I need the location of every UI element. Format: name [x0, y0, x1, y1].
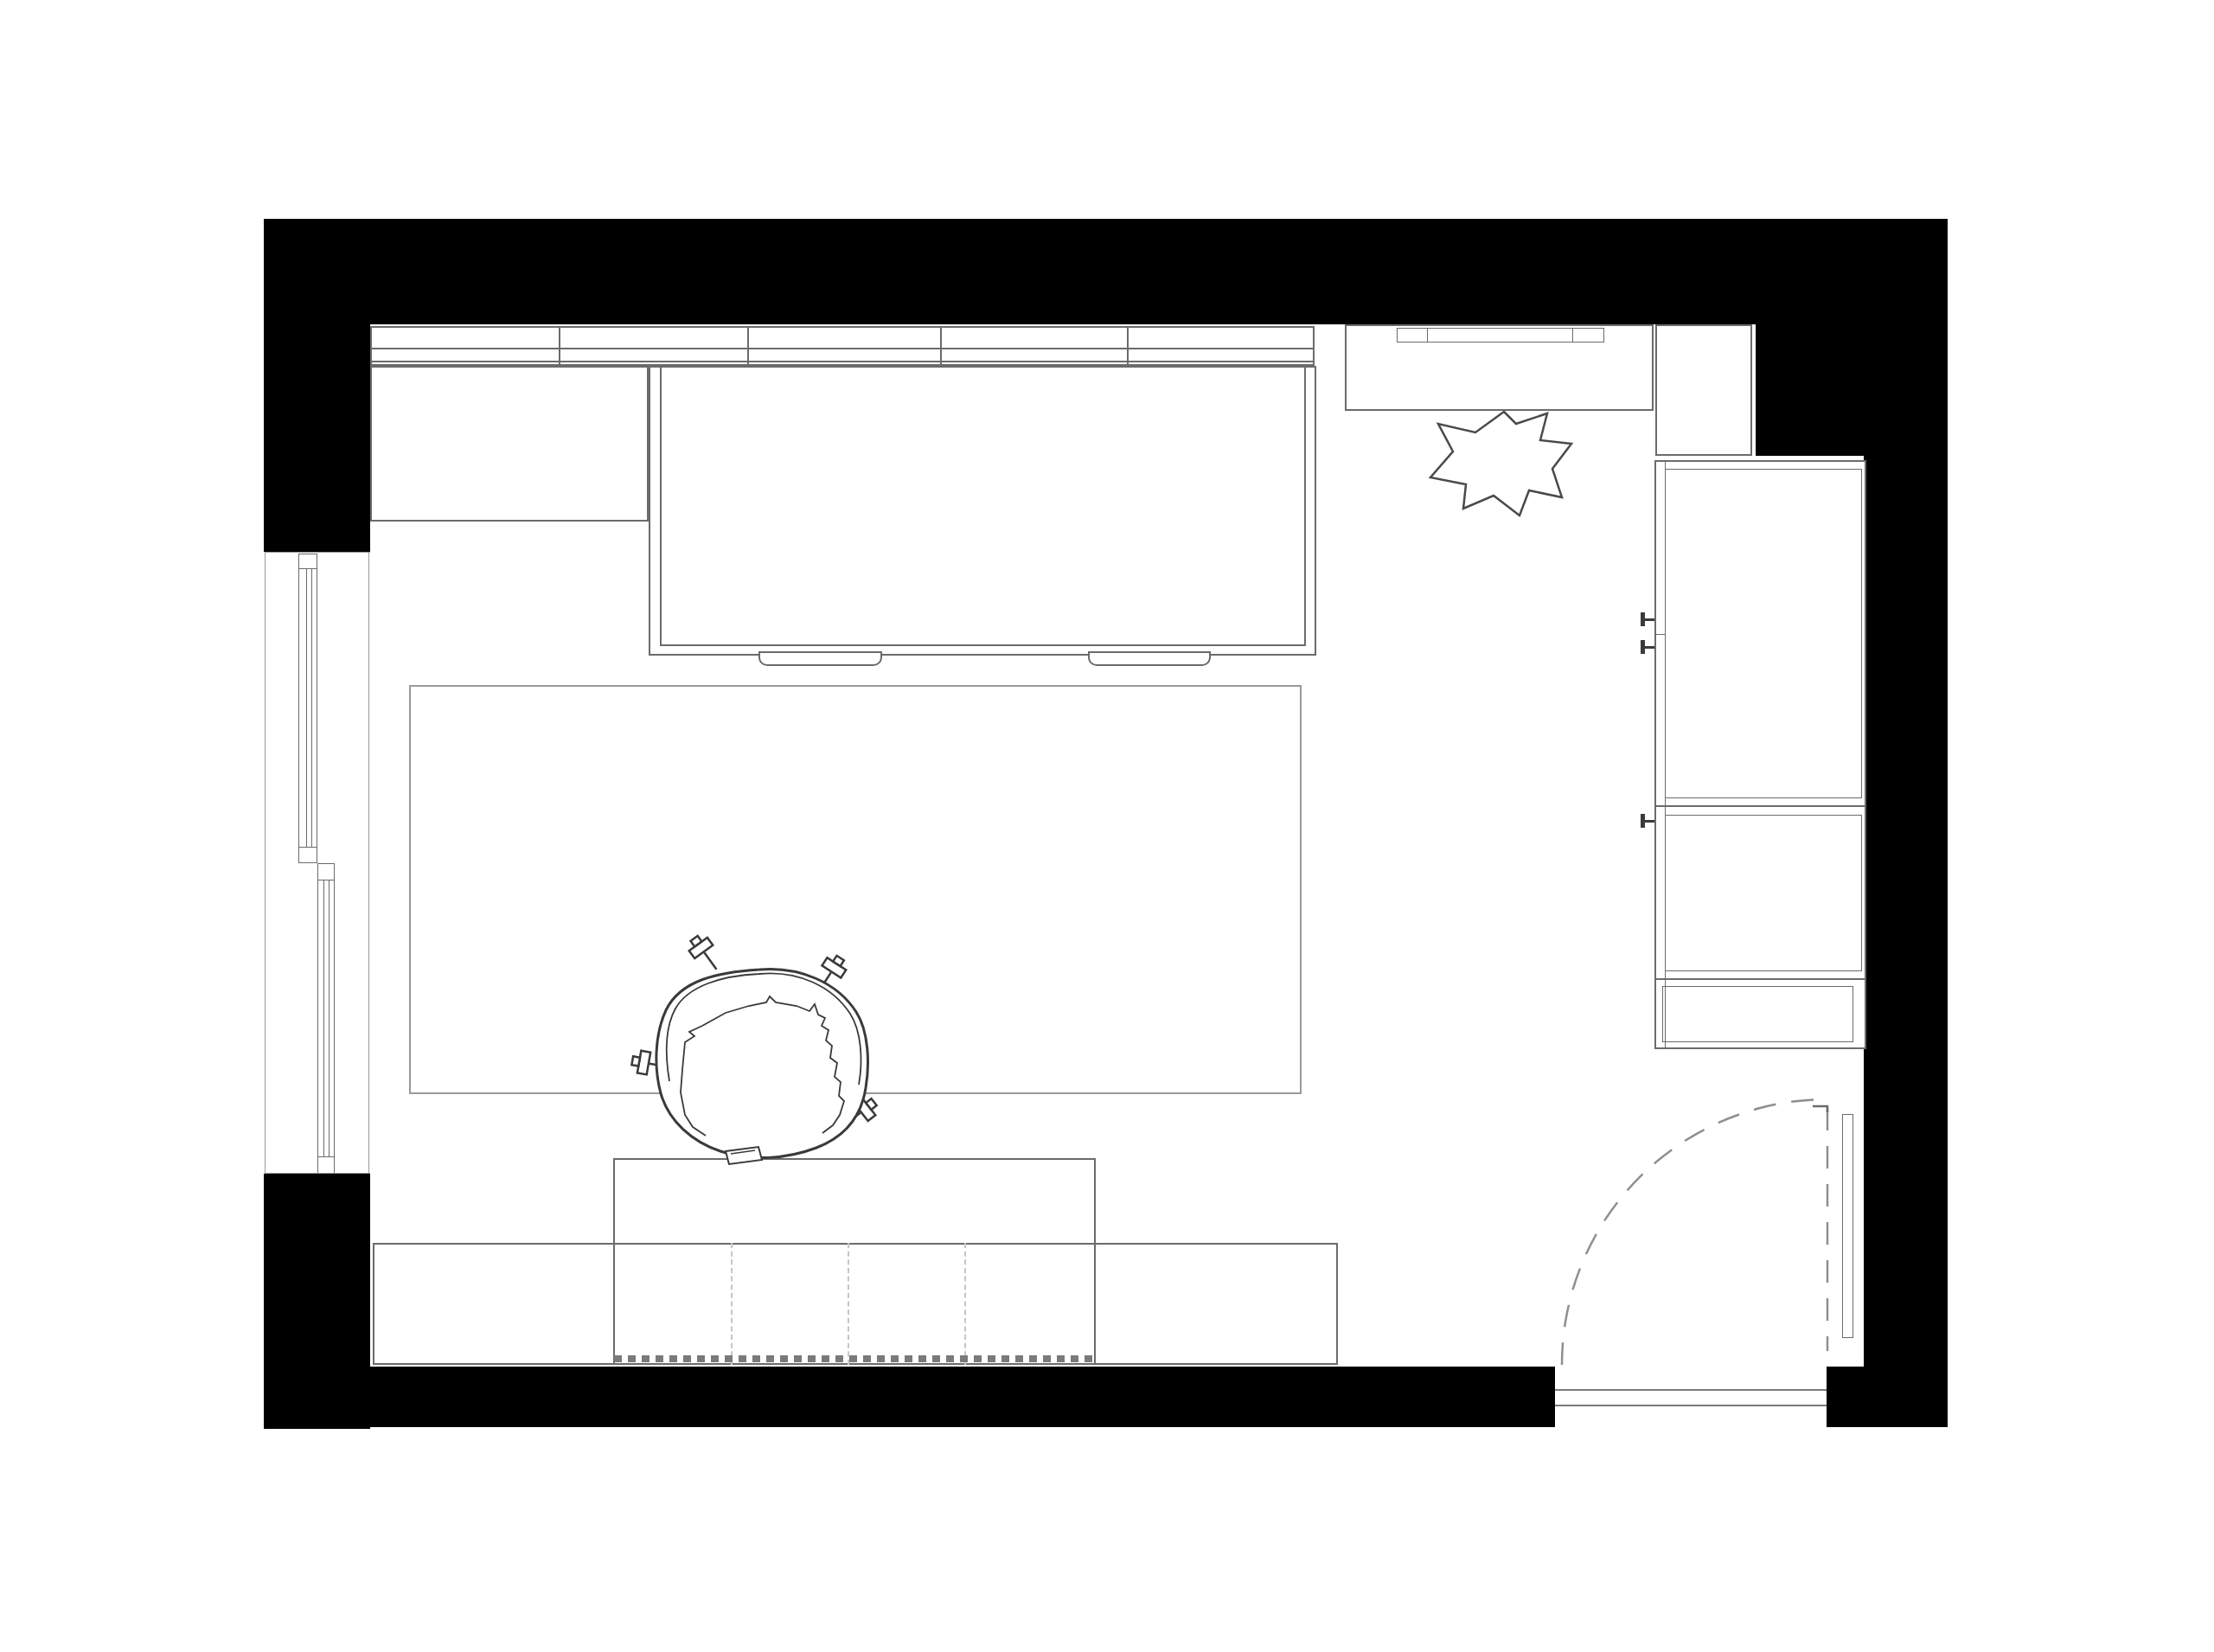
- cabinet-top-right: [1655, 324, 1752, 456]
- window-opening-outer-edge: [265, 552, 266, 1174]
- shelf-strip-bottom-line: [370, 361, 1315, 362]
- wardrobe-side-strip: [1665, 460, 1666, 1049]
- wardrobe-division-1: [1654, 805, 1866, 807]
- window-sash-upper: [298, 554, 317, 863]
- wall-shelf-divider-2: [1572, 328, 1573, 343]
- window-sill-line: [265, 1173, 370, 1174]
- band-dashed-divider-3: [964, 1243, 966, 1365]
- wardrobe-handle-stem-1: [1645, 618, 1654, 621]
- closet-top-left: [370, 366, 649, 522]
- window-head-line: [265, 552, 370, 553]
- wardrobe-division-2: [1654, 978, 1866, 980]
- wardrobe-door-panel-a: [1665, 469, 1862, 798]
- wall-right-band: [1864, 456, 1948, 1367]
- sash-lower-glass-a: [323, 880, 324, 1157]
- shelf-strip-divider-4: [1127, 326, 1129, 366]
- sash-lower-cap-top: [317, 880, 335, 880]
- window-sash-lower: [317, 863, 335, 1174]
- door-swing-arc: [1562, 1099, 1827, 1365]
- wall-left-upper: [264, 219, 370, 552]
- sash-upper-cap-top: [298, 568, 317, 569]
- band-dashed-divider-1: [731, 1243, 733, 1365]
- chair-base-tab-line: [731, 1150, 755, 1154]
- door-threshold-inner: [1555, 1405, 1827, 1406]
- window-opening-inner-edge: [368, 552, 369, 1174]
- rug: [409, 685, 1302, 1094]
- desk-stool-tab-2: [1088, 651, 1211, 666]
- sash-upper-cap-bottom: [298, 847, 317, 848]
- wall-shelf-divider-1: [1427, 328, 1428, 343]
- wall-top-right-corner: [1756, 219, 1948, 456]
- tv-bench: [613, 1158, 1096, 1365]
- floor-plan-canvas: [0, 0, 2214, 1652]
- wardrobe-handle-stem-3: [1645, 820, 1654, 823]
- wall-bottom: [264, 1367, 1555, 1427]
- shelf-strip-divider-3: [940, 326, 942, 366]
- wall-top: [264, 219, 1948, 324]
- wardrobe-side-split: [1654, 634, 1665, 635]
- door-threshold-outer: [1555, 1389, 1827, 1391]
- sash-upper-glass-b: [311, 569, 312, 848]
- door-leaf: [1842, 1114, 1853, 1338]
- plant-icon: [1430, 412, 1571, 515]
- band-dashed-divider-2: [848, 1243, 849, 1365]
- wall-shelf-top-right: [1397, 328, 1604, 343]
- shelf-strip-divider-1: [559, 326, 560, 366]
- door-swing: [1562, 1099, 1827, 1365]
- wardrobe-door-panel-b: [1665, 815, 1862, 971]
- sash-upper-glass-a: [306, 569, 307, 848]
- chair-caster-bottom-right: [837, 1093, 881, 1135]
- shelf-strip-row-line: [370, 348, 1315, 349]
- wall-bottom-right-jamb: [1827, 1367, 1948, 1427]
- wardrobe-drawer-panel: [1662, 986, 1853, 1042]
- shelf-strip-divider-2: [747, 326, 749, 366]
- radiator-tick-row: [614, 1355, 1095, 1362]
- sash-lower-cap-bottom: [317, 1156, 335, 1157]
- desk-stool-tab-1: [758, 651, 882, 666]
- door-swing-cap: [1813, 1106, 1827, 1112]
- desk-inner: [660, 366, 1306, 646]
- sash-lower-glass-b: [329, 880, 330, 1157]
- wardrobe-handle-stem-2: [1645, 646, 1654, 649]
